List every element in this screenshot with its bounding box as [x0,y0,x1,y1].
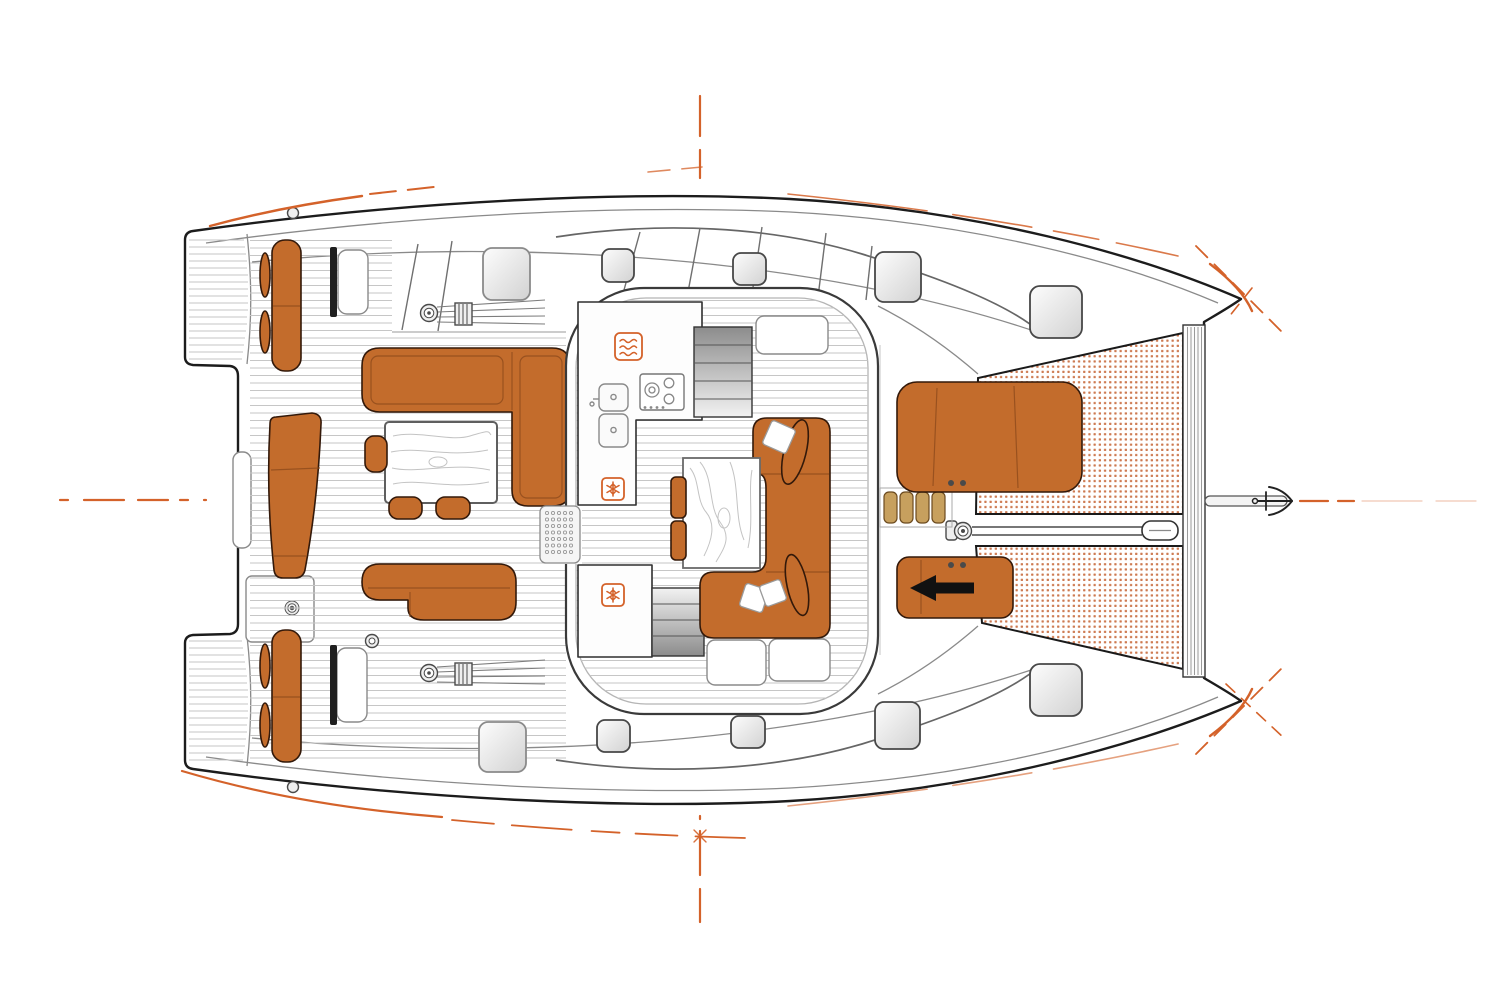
deck-hatch [602,249,634,282]
helm-post-top [330,247,337,317]
sunpad-sliding [897,557,1013,618]
deck-hatch [731,716,765,748]
cleat-top [288,208,299,219]
deck-hatch [875,252,921,302]
deck-hatch [597,720,630,752]
fold-seat [671,521,686,560]
snowflake-icon [602,478,624,500]
deck-hatch [875,702,920,749]
stool [389,497,422,519]
entry-mat [540,506,580,563]
fold-seat [671,477,686,518]
cleat-bottom [288,782,299,793]
windlass [946,521,972,540]
stool [365,436,387,472]
sheer-dash-top-mid [648,167,702,172]
saloon-locker [769,639,830,681]
stairs-port-hull [652,588,704,656]
galley-counter-lower [578,565,652,657]
stool [436,497,470,519]
deck-hatch [1030,664,1082,716]
bolster-cushion [260,253,270,297]
deck-hatch [1030,286,1082,338]
bolster-cushion [260,703,270,747]
bow-cross-bottom [1226,684,1284,738]
deck-hatch [483,248,530,300]
forward-crossbeam [1183,325,1205,677]
stairs-starboard-hull [694,327,752,417]
deck-plan-canvas [0,0,1500,1000]
bolster-cushion [260,644,270,688]
deck-hatch [733,253,766,285]
snowflake-icon [602,584,624,606]
saloon-locker [707,640,766,685]
bolster-cushion [260,311,270,353]
dining-table [683,458,760,568]
helm-console-top [338,250,368,314]
cooktop [640,374,684,410]
helm-console-bottom [337,648,367,722]
saloon [540,288,878,714]
sideboard [756,316,828,354]
cockpit-table [385,422,497,503]
anchor-icon [1253,487,1293,515]
aft-boarding-step [233,452,251,548]
helm-post-bottom [330,645,337,725]
sheer-dash-top-left [370,187,434,194]
waves-icon [615,333,642,360]
aft-bench-port [272,630,301,762]
sunpad-large [897,382,1082,492]
deck-hatch [479,722,526,772]
catamaran-deck-plan [0,0,1500,1000]
